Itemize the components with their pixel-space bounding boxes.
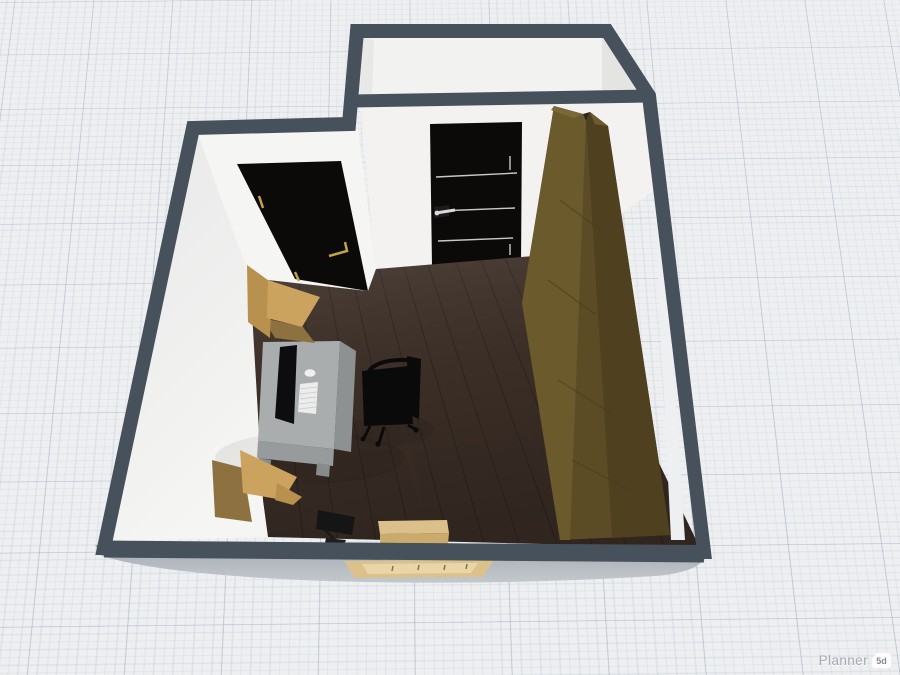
desk-leg bbox=[316, 463, 330, 477]
door-center[interactable] bbox=[430, 122, 522, 267]
bottom-wall-cap[interactable] bbox=[104, 549, 704, 554]
cabinet[interactable] bbox=[378, 520, 449, 545]
watermark-brand: Planner bbox=[819, 653, 868, 668]
planner-3d-viewport[interactable]: Planner 5d bbox=[0, 0, 900, 675]
watermark-logo-badge: 5d bbox=[872, 653, 891, 668]
alcove[interactable] bbox=[360, 38, 643, 98]
chair-backrest bbox=[407, 356, 421, 419]
room-canvas[interactable] bbox=[0, 0, 900, 675]
watermark: Planner 5d bbox=[819, 653, 891, 668]
mouse[interactable] bbox=[305, 369, 316, 377]
keyboard[interactable] bbox=[298, 382, 318, 414]
divider-wall-cap[interactable] bbox=[352, 96, 649, 101]
window[interactable] bbox=[344, 560, 494, 578]
